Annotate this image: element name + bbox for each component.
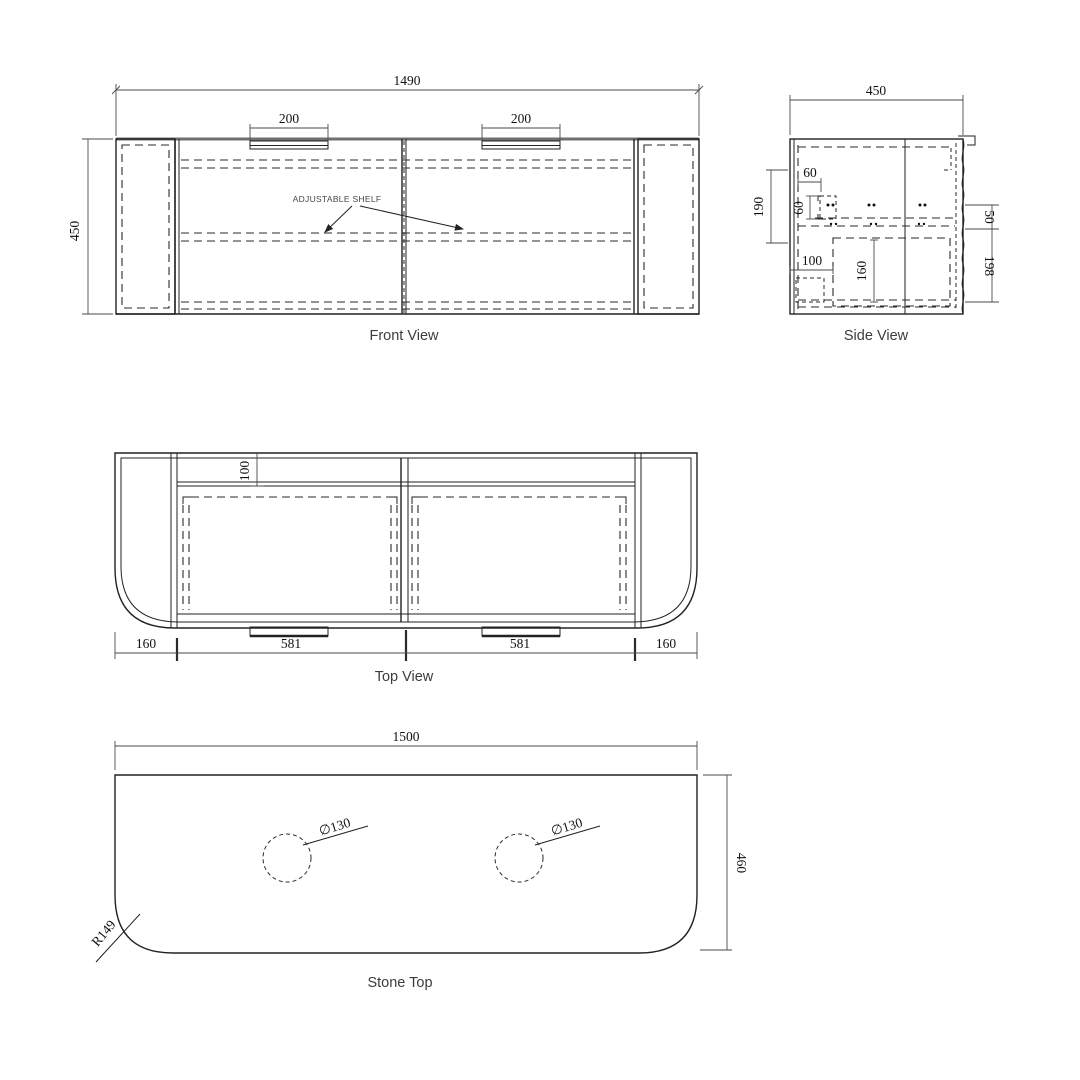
front-cabinet-outline bbox=[116, 139, 699, 314]
side-60v-dimension: 60 bbox=[791, 196, 818, 219]
front-width-dimension: 1490 bbox=[112, 73, 703, 136]
front-handle-left-value: 200 bbox=[279, 111, 300, 126]
top-door-dashed-right bbox=[412, 497, 626, 610]
stone-tap-hole-right: ∅130 bbox=[495, 815, 600, 882]
side-interior-lines bbox=[796, 139, 956, 314]
stone-width-dimension: 1500 bbox=[115, 729, 697, 770]
front-height-value: 450 bbox=[67, 221, 82, 242]
technical-drawing-sheet: 1490 450 bbox=[0, 0, 1080, 1080]
side-pocket-dashed bbox=[820, 196, 836, 219]
side-benchtop-nosing bbox=[958, 136, 975, 145]
top-view: 100 160 581 581 160 Top View bbox=[115, 453, 697, 685]
front-right-end-panel-dashed bbox=[644, 145, 693, 308]
front-width-value: 1490 bbox=[394, 73, 421, 88]
side-drawer-dashed-box bbox=[833, 238, 950, 306]
adjustable-shelf-note: ADJUSTABLE SHELF bbox=[293, 194, 463, 232]
side-190-dimension: 190 bbox=[751, 170, 788, 243]
front-handle-right-value: 200 bbox=[511, 111, 532, 126]
stone-radius-value: R149 bbox=[88, 917, 118, 949]
drawing-svg: 1490 450 bbox=[0, 0, 1080, 1080]
front-right-end-panel bbox=[638, 139, 699, 314]
top-door-right-value: 581 bbox=[510, 636, 530, 651]
stone-top: 1500 ∅130 ∅130 460 R149 Stone Top bbox=[88, 729, 749, 991]
front-handle-right-dimension: 200 bbox=[482, 111, 560, 140]
top-bottom-dimensions: 160 581 581 160 bbox=[115, 630, 697, 661]
stone-radius-dimension: R149 bbox=[88, 914, 140, 962]
top-100-value: 100 bbox=[237, 461, 252, 482]
side-shelf-pin-holes bbox=[827, 204, 927, 226]
stone-top-label: Stone Top bbox=[367, 975, 432, 991]
stone-width-value: 1500 bbox=[393, 729, 420, 744]
stone-top-outline bbox=[115, 775, 697, 953]
top-end-right-value: 160 bbox=[656, 636, 677, 651]
side-60h-dimension: 60 bbox=[798, 165, 821, 192]
stone-depth-value: 460 bbox=[734, 853, 749, 874]
front-handle-left-dimension: 200 bbox=[250, 111, 328, 140]
side-depth-dimension: 450 bbox=[790, 83, 963, 135]
front-handle-left bbox=[250, 141, 328, 149]
side-60v-value: 60 bbox=[791, 201, 806, 215]
side-right-dimensions: 50 198 bbox=[965, 205, 999, 302]
side-160-value: 160 bbox=[854, 261, 869, 282]
stone-hole-right-value: ∅130 bbox=[549, 815, 584, 839]
side-100-value: 100 bbox=[802, 253, 823, 268]
top-cabinet-outline bbox=[115, 453, 697, 628]
adjustable-shelf-text: ADJUSTABLE SHELF bbox=[293, 194, 382, 204]
side-198-value: 198 bbox=[982, 256, 997, 277]
top-end-left-value: 160 bbox=[136, 636, 157, 651]
front-left-end-panel bbox=[116, 139, 175, 314]
front-handle-right bbox=[482, 141, 560, 149]
side-50-value: 50 bbox=[982, 210, 997, 224]
front-shelf-lines bbox=[181, 160, 634, 309]
top-view-label: Top View bbox=[375, 669, 434, 685]
stone-depth-dimension: 460 bbox=[700, 775, 749, 950]
stone-hole-left-value: ∅130 bbox=[317, 815, 352, 839]
side-depth-value: 450 bbox=[866, 83, 887, 98]
side-view: 450 bbox=[751, 83, 999, 344]
stone-tap-hole-left: ∅130 bbox=[263, 815, 368, 882]
side-cabinet-outline bbox=[790, 136, 975, 314]
top-door-left-value: 581 bbox=[281, 636, 301, 651]
side-lower-pocket-dashed bbox=[796, 278, 824, 302]
side-60h-value: 60 bbox=[803, 165, 817, 180]
top-door-dashed-left bbox=[183, 497, 397, 610]
front-left-end-panel-dashed bbox=[122, 145, 169, 308]
front-view-label: Front View bbox=[369, 328, 439, 344]
front-height-dimension: 450 bbox=[67, 139, 113, 314]
side-100-dimension: 100 bbox=[790, 253, 833, 274]
front-view: 1490 450 bbox=[67, 73, 703, 344]
side-190-value: 190 bbox=[751, 197, 766, 218]
side-160-dimension: 160 bbox=[854, 240, 878, 302]
side-view-label: Side View bbox=[844, 328, 909, 344]
